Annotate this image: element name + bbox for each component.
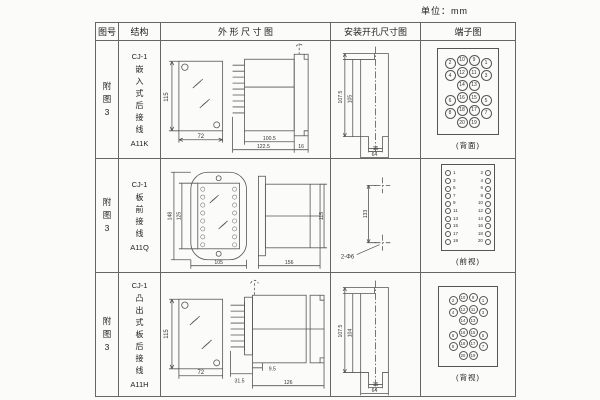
terminal-2: 2 <box>445 58 456 69</box>
terminal-ring <box>445 208 451 214</box>
terminal-5: 5 <box>479 331 488 340</box>
terminal-ring <box>485 223 491 229</box>
outline-cell-row1: 115 72 100.5 122.5 16 <box>161 41 331 159</box>
terminal-num-7: 7 <box>453 194 456 199</box>
terminal-pair-row: 1112 <box>445 208 491 214</box>
dim-total-depth: 122.5 <box>257 144 270 150</box>
terminal-num-8: 8 <box>480 194 483 199</box>
dim-body-depth: 100.5 <box>263 135 276 141</box>
terminal-row: 21091 <box>441 293 495 302</box>
terminal-row: 412113 <box>440 67 496 78</box>
structure-desc-row2: 板前接线 <box>134 192 145 240</box>
spec-table: 图号 结构 外 形 尺 寸 图 安装开孔尺寸图 端子图 附图3 CJ-1 嵌入式… <box>95 22 516 397</box>
terminal-ring <box>485 201 491 207</box>
hole-callout: 2-Φ6 <box>341 254 355 260</box>
terminal-pair-row: 910 <box>445 201 491 207</box>
terminal-10: 10 <box>459 293 468 302</box>
terminal-4: 4 <box>449 308 458 317</box>
terminal-8: 8 <box>449 342 458 351</box>
terminal-view-label-row3: (背视) <box>456 372 480 383</box>
terminal-num-5: 5 <box>453 186 456 191</box>
terminal-14: 14 <box>459 316 468 325</box>
outline-cell-row3: 115 72 31.5 9.5 126 <box>161 273 331 397</box>
fig-no-row3: 附图3 <box>102 315 112 353</box>
dim-front-width3: 72 <box>197 369 204 375</box>
outline-cell-row2: 148 125 105 156 115 <box>161 159 331 273</box>
terminal-9: 9 <box>469 55 480 66</box>
outline-drawing-a11k: 115 72 100.5 122.5 16 <box>161 41 330 159</box>
outline-drawing-a11h: 115 72 31.5 9.5 126 <box>161 273 330 397</box>
terminal-1: 1 <box>481 58 492 69</box>
terminal-7: 7 <box>481 108 492 119</box>
terminal-20: 20 <box>459 351 468 360</box>
terminal-pair-row: 78 <box>445 193 491 199</box>
dim-front-height2: 148 <box>167 211 173 220</box>
structure-desc-row1: 嵌入式后接线 <box>134 64 145 136</box>
terminal-ring <box>485 208 491 214</box>
terminal-row: 1413 <box>441 316 495 325</box>
dim-mount-outer-h3: 107.5 <box>338 324 344 337</box>
terminal-ring <box>485 231 491 237</box>
fig-no-row2: 附图3 <box>102 196 112 234</box>
terminal-ring <box>445 223 451 229</box>
fig-no-cell-row1: 附图3 <box>96 41 119 159</box>
dim-flange: 16 <box>298 144 304 150</box>
structure-code-row2: A11Q <box>130 243 149 252</box>
terminal-num-9: 9 <box>453 201 456 206</box>
terminal-view-label-row1: (背面) <box>456 140 480 151</box>
terminal-17: 17 <box>469 339 478 348</box>
terminal-ring <box>445 193 451 199</box>
terminal-ring <box>445 231 451 237</box>
terminal-row: 818177 <box>440 105 496 116</box>
terminal-11: 11 <box>469 67 480 78</box>
terminal-num-18: 18 <box>478 232 483 237</box>
dim-mount-outer-w: 64 <box>372 151 378 157</box>
terminal-num-10: 10 <box>478 201 483 206</box>
terminal-ring <box>485 239 491 245</box>
structure-model-row2: CJ-1 <box>132 180 148 189</box>
terminal-18: 18 <box>459 339 468 348</box>
dim-body-length: 126 <box>284 380 293 386</box>
terminal-11: 11 <box>469 305 478 314</box>
terminal-7: 7 <box>479 342 488 351</box>
terminal-num-6: 6 <box>480 186 483 191</box>
dim-side-length: 156 <box>285 260 294 266</box>
terminal-num-12: 12 <box>478 209 483 214</box>
terminal-6: 6 <box>449 331 458 340</box>
structure-code-row3: A11H <box>130 380 148 389</box>
dim-side-height: 115 <box>319 211 325 219</box>
terminal-num-16: 16 <box>478 224 483 229</box>
mounting-cell-row1: 107.5 105 16 64 <box>331 41 421 159</box>
terminal-15: 15 <box>469 92 480 103</box>
terminal-13: 13 <box>469 316 478 325</box>
dim-front-height3: 115 <box>164 328 170 338</box>
terminal-17: 17 <box>469 105 480 116</box>
terminal-num-14: 14 <box>478 217 483 222</box>
terminal-row: 21091 <box>440 55 496 66</box>
header-structure: 结构 <box>119 23 161 41</box>
mounting-cell-row3: 107.5 104 16 64 <box>331 273 421 397</box>
outline-drawing-a11q: 148 125 105 156 115 <box>161 159 330 273</box>
terminal-10: 10 <box>457 55 468 66</box>
terminal-19: 19 <box>469 117 480 128</box>
terminal-ring <box>445 239 451 245</box>
terminal-3: 3 <box>479 308 488 317</box>
terminal-ring <box>445 170 451 176</box>
terminal-diagram-row1: 2109141211314136161558181772019 <box>437 48 499 136</box>
fig-no-row1: 附图3 <box>102 80 112 118</box>
terminal-num-4: 4 <box>480 179 483 184</box>
terminal-8: 8 <box>445 108 456 119</box>
terminal-ring <box>485 186 491 192</box>
dim-hole-spacing: 133 <box>363 209 369 218</box>
dim-mount-inner-h3: 104 <box>347 328 353 337</box>
terminal-ring <box>445 201 451 207</box>
terminal-view-label-row2: (前视) <box>456 256 480 267</box>
structure-model-row3: CJ-1 <box>132 281 148 290</box>
terminal-row: 2019 <box>440 117 496 128</box>
unit-label: 单位：mm <box>421 4 468 17</box>
terminal-19: 19 <box>469 351 478 360</box>
dim-window-height: 125 <box>176 211 182 220</box>
dim-offset: 9.5 <box>269 366 276 372</box>
terminal-pair-row: 1314 <box>445 216 491 222</box>
terminal-num-19: 19 <box>453 239 458 244</box>
terminal-20: 20 <box>457 117 468 128</box>
terminal-num-3: 3 <box>453 179 456 184</box>
terminal-15: 15 <box>469 328 478 337</box>
structure-cell-row1: CJ-1 嵌入式后接线 A11K <box>119 41 161 159</box>
mounting-drawing-a11k: 107.5 105 16 64 <box>331 41 420 159</box>
terminal-1: 1 <box>479 296 488 305</box>
terminal-pair-row: 12 <box>445 170 491 176</box>
terminal-cell-row3: 2109141211314136161558181772019 (背视) <box>421 273 516 397</box>
dim-mount-outer-w3: 64 <box>372 387 378 393</box>
header-terminal: 端子图 <box>421 23 516 41</box>
terminal-pair-row: 56 <box>445 186 491 192</box>
mounting-drawing-a11h: 107.5 104 16 64 <box>331 273 420 397</box>
dim-front-width2: 105 <box>214 260 223 266</box>
structure-desc-row3: 凸出式板后接线 <box>134 293 145 377</box>
terminal-diagram-row3: 2109141211314136161558181772019 <box>438 286 498 367</box>
terminal-row: 412113 <box>441 305 495 314</box>
terminal-4: 4 <box>445 70 456 81</box>
structure-cell-row2: CJ-1 板前接线 A11Q <box>119 159 161 273</box>
manual-page: 单位：mm 图号 结构 外 形 尺 寸 图 安装开孔尺寸图 端子图 附图3 CJ… <box>0 0 600 400</box>
terminal-row: 2019 <box>441 351 495 360</box>
terminal-num-2: 2 <box>480 171 483 176</box>
terminal-cell-row1: 2109141211314136161558181772019 (背面) <box>421 41 516 159</box>
terminal-16: 16 <box>459 328 468 337</box>
terminal-pair-row: 1920 <box>445 239 491 245</box>
dim-mount-outer-h: 107.5 <box>338 90 344 103</box>
dim-mount-inner-h: 105 <box>347 94 353 103</box>
mounting-drawing-a11q: 133 2-Φ6 <box>331 159 420 273</box>
terminal-5: 5 <box>481 95 492 106</box>
terminal-num-1: 1 <box>453 171 456 176</box>
terminal-6: 6 <box>445 95 456 106</box>
terminal-ring <box>445 216 451 222</box>
terminal-12: 12 <box>459 305 468 314</box>
terminal-14: 14 <box>457 80 468 91</box>
header-fig-no: 图号 <box>96 23 119 41</box>
fig-no-cell-row3: 附图3 <box>96 273 119 397</box>
terminal-num-13: 13 <box>453 217 458 222</box>
mounting-cell-row2: 133 2-Φ6 <box>331 159 421 273</box>
terminal-pair-row: 34 <box>445 178 491 184</box>
structure-cell-row3: CJ-1 凸出式板后接线 A11H <box>119 273 161 397</box>
dim-front-width: 72 <box>197 133 204 139</box>
terminal-row: 616155 <box>440 92 496 103</box>
dim-front-height: 115 <box>164 91 170 101</box>
terminal-num-17: 17 <box>453 232 458 237</box>
terminal-16: 16 <box>457 92 468 103</box>
terminal-num-20: 20 <box>478 239 483 244</box>
terminal-diagram-row2: 1234567891011121314151617181920 <box>441 164 495 250</box>
terminal-ring <box>445 186 451 192</box>
terminal-ring <box>485 170 491 176</box>
terminal-18: 18 <box>457 105 468 116</box>
header-mounting: 安装开孔尺寸图 <box>331 23 421 41</box>
header-outline: 外 形 尺 寸 图 <box>161 23 331 41</box>
terminal-3: 3 <box>481 70 492 81</box>
terminal-num-15: 15 <box>453 224 458 229</box>
terminal-pair-row: 1516 <box>445 223 491 229</box>
terminal-ring <box>485 193 491 199</box>
dim-pin-length: 31.5 <box>235 378 245 384</box>
terminal-9: 9 <box>469 293 478 302</box>
terminal-pair-row: 1718 <box>445 231 491 237</box>
terminal-cell-row2: 1234567891011121314151617181920 (前视) <box>421 159 516 273</box>
terminal-row: 818177 <box>441 339 495 348</box>
terminal-num-11: 11 <box>453 209 458 214</box>
terminal-2: 2 <box>449 296 458 305</box>
terminal-13: 13 <box>469 80 480 91</box>
terminal-12: 12 <box>457 67 468 78</box>
terminal-row: 1413 <box>440 80 496 91</box>
terminal-ring <box>445 178 451 184</box>
structure-code-row1: A11K <box>131 139 149 148</box>
fig-no-cell-row2: 附图3 <box>96 159 119 273</box>
structure-model-row1: CJ-1 <box>132 52 148 61</box>
terminal-row: 616155 <box>441 328 495 337</box>
terminal-ring <box>485 216 491 222</box>
terminal-ring <box>485 178 491 184</box>
